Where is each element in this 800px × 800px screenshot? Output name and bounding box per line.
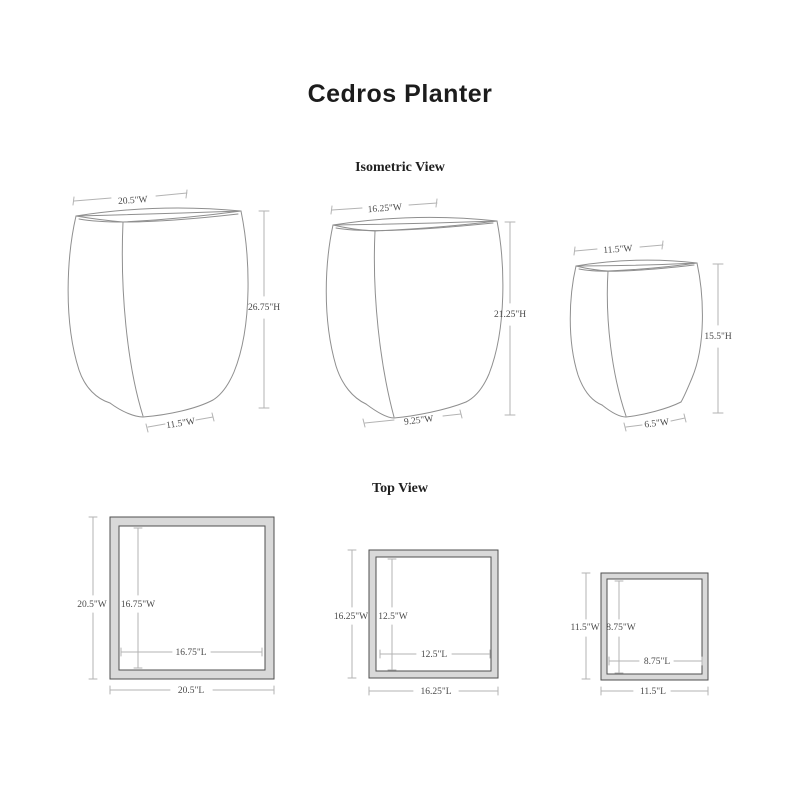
dim-label-outer-length: 11.5"L xyxy=(640,687,666,697)
dim-label-outer-width: 20.5"W xyxy=(77,600,107,610)
dimension-line xyxy=(89,517,97,679)
dim-label-height: 21.25"H xyxy=(494,310,526,320)
rim-opening-edge xyxy=(76,211,241,216)
dim-label-outer-length: 16.25"L xyxy=(420,687,451,697)
dimension-outer-width: 11.5"W xyxy=(570,573,599,679)
dim-label-height: 26.75"H xyxy=(248,303,280,313)
body-bottom-edge xyxy=(110,400,213,417)
technical-drawing: 20.5"W 26.75"H 11.5"W xyxy=(0,0,800,800)
body-left-edge xyxy=(326,225,366,404)
dim-label-height: 15.5"H xyxy=(704,332,732,342)
planter-outline xyxy=(570,260,702,417)
dimension-outer-length: 16.25"L xyxy=(369,687,498,697)
dimension-bottom-width: 9.25"W xyxy=(363,410,462,428)
dim-label-inner-length: 12.5"L xyxy=(421,650,448,660)
planter-outline xyxy=(68,208,248,417)
dim-label-top-width: 11.5"W xyxy=(603,244,633,256)
body-center-seam xyxy=(607,271,626,416)
body-right-edge xyxy=(681,263,702,402)
dimension-height: 26.75"H xyxy=(248,211,280,408)
dim-label-bottom-width: 6.5"W xyxy=(644,418,670,431)
body-left-edge xyxy=(68,216,110,403)
top-view-small: 11.5"W 8.75"W 8.75"L 11.5"L xyxy=(570,573,708,697)
body-left-edge xyxy=(570,266,602,405)
dim-label-outer-length: 20.5"L xyxy=(178,686,205,696)
body-center-seam xyxy=(122,222,143,416)
dim-label-inner-width: 16.75"W xyxy=(121,600,155,610)
dim-label-top-width: 20.5"W xyxy=(118,195,148,207)
top-view-large: 20.5"W 16.75"W 16.75"L 20.5"L xyxy=(77,517,274,696)
dim-label-inner-length: 16.75"L xyxy=(175,648,206,658)
body-center-seam xyxy=(374,231,394,417)
dimension-outer-width: 16.25"W xyxy=(334,550,368,678)
planter-outline xyxy=(326,217,503,418)
isometric-planter-medium: 16.25"W 21.25"H 9.25"W xyxy=(326,199,526,428)
dimension-outer-length: 20.5"L xyxy=(110,686,274,696)
dimension-top-width: 16.25"W xyxy=(331,199,437,215)
dimension-outer-length: 11.5"L xyxy=(601,687,708,697)
isometric-planter-large: 20.5"W 26.75"H 11.5"W xyxy=(68,190,280,432)
dim-label-inner-length: 8.75"L xyxy=(644,657,671,667)
isometric-planter-small: 11.5"W 15.5"H 6.5"W xyxy=(570,241,732,431)
dim-label-inner-width: 8.75"W xyxy=(606,623,636,633)
dimension-top-width: 11.5"W xyxy=(574,241,663,256)
body-right-edge xyxy=(213,211,248,400)
body-bottom-edge xyxy=(602,402,681,417)
dimension-top-width: 20.5"W xyxy=(73,190,187,207)
dim-label-outer-width: 16.25"W xyxy=(334,612,368,622)
dim-label-bottom-width: 11.5"W xyxy=(166,417,196,431)
dim-label-top-width: 16.25"W xyxy=(367,203,402,215)
dim-label-inner-width: 12.5"W xyxy=(378,612,408,622)
dimension-outer-width: 20.5"W xyxy=(77,517,107,679)
dimension-height: 15.5"H xyxy=(704,264,732,413)
dim-label-outer-width: 11.5"W xyxy=(570,623,599,633)
dimension-height: 21.25"H xyxy=(494,222,526,415)
dimension-bottom-width: 6.5"W xyxy=(624,414,686,431)
planter-spec-sheet: Cedros Planter Isometric View Top View 2… xyxy=(0,0,800,800)
top-view-medium: 16.25"W 12.5"W 12.5"L 16.25"L xyxy=(334,550,498,697)
